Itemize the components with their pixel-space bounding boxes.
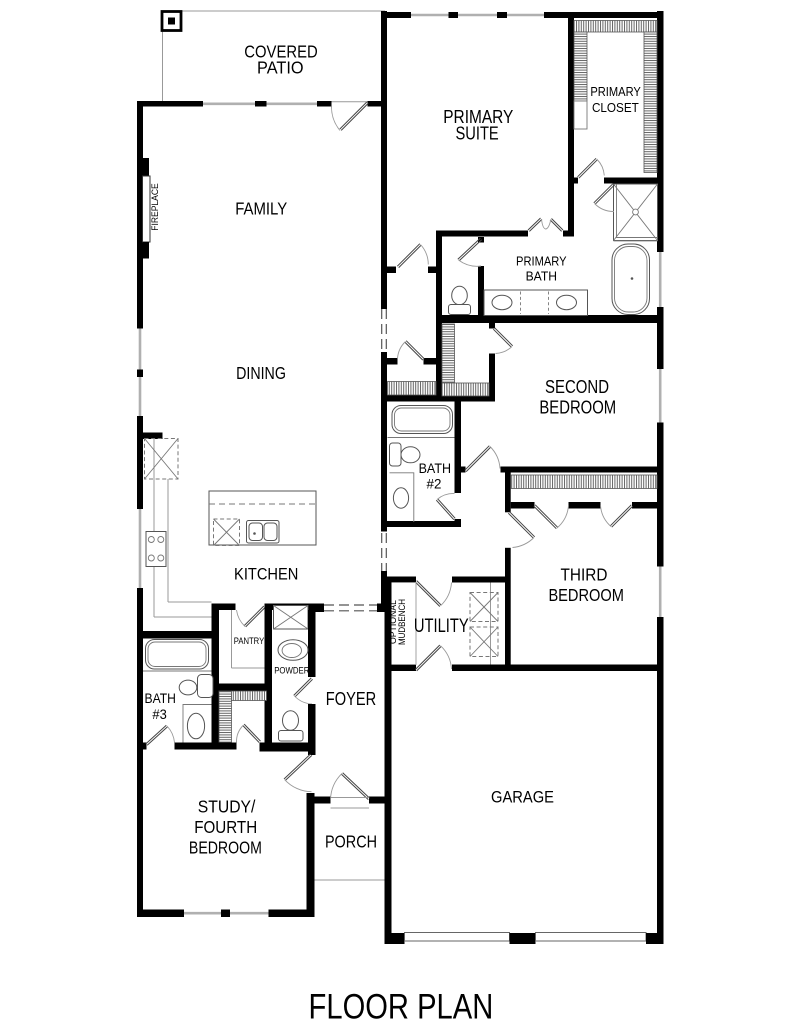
svg-text:BATH: BATH — [145, 691, 176, 706]
svg-text:BEDROOM: BEDROOM — [539, 398, 616, 418]
svg-text:#3: #3 — [152, 707, 166, 722]
svg-text:#2: #2 — [427, 476, 442, 491]
svg-text:FAMILY: FAMILY — [235, 199, 287, 219]
svg-text:GARAGE: GARAGE — [491, 788, 554, 807]
svg-text:POWDER: POWDER — [274, 666, 309, 677]
svg-text:STUDY/: STUDY/ — [198, 797, 256, 817]
svg-text:PANTRY: PANTRY — [234, 636, 265, 646]
svg-text:SUITE: SUITE — [456, 124, 499, 144]
svg-text:CLOSET: CLOSET — [592, 100, 639, 115]
svg-text:FIREPLACE: FIREPLACE — [150, 183, 160, 231]
svg-text:BEDROOM: BEDROOM — [189, 838, 262, 858]
svg-text:KITCHEN: KITCHEN — [234, 566, 298, 584]
svg-text:THIRD: THIRD — [561, 565, 608, 585]
svg-text:FOURTH: FOURTH — [194, 817, 257, 837]
svg-text:FLOOR PLAN: FLOOR PLAN — [309, 988, 494, 1027]
svg-text:SECOND: SECOND — [545, 377, 609, 397]
svg-text:BATH: BATH — [526, 269, 557, 284]
svg-text:PATIO: PATIO — [257, 58, 304, 78]
svg-text:FOYER: FOYER — [326, 688, 376, 709]
svg-text:PRIMARY: PRIMARY — [516, 253, 567, 268]
svg-text:DINING: DINING — [236, 363, 286, 383]
svg-text:PORCH: PORCH — [325, 832, 377, 852]
svg-text:UTILITY: UTILITY — [414, 616, 469, 637]
svg-text:PRIMARY: PRIMARY — [590, 84, 641, 99]
svg-text:BEDROOM: BEDROOM — [548, 585, 624, 605]
svg-text:MUDBENCH: MUDBENCH — [397, 599, 407, 645]
svg-text:BATH: BATH — [419, 461, 451, 476]
